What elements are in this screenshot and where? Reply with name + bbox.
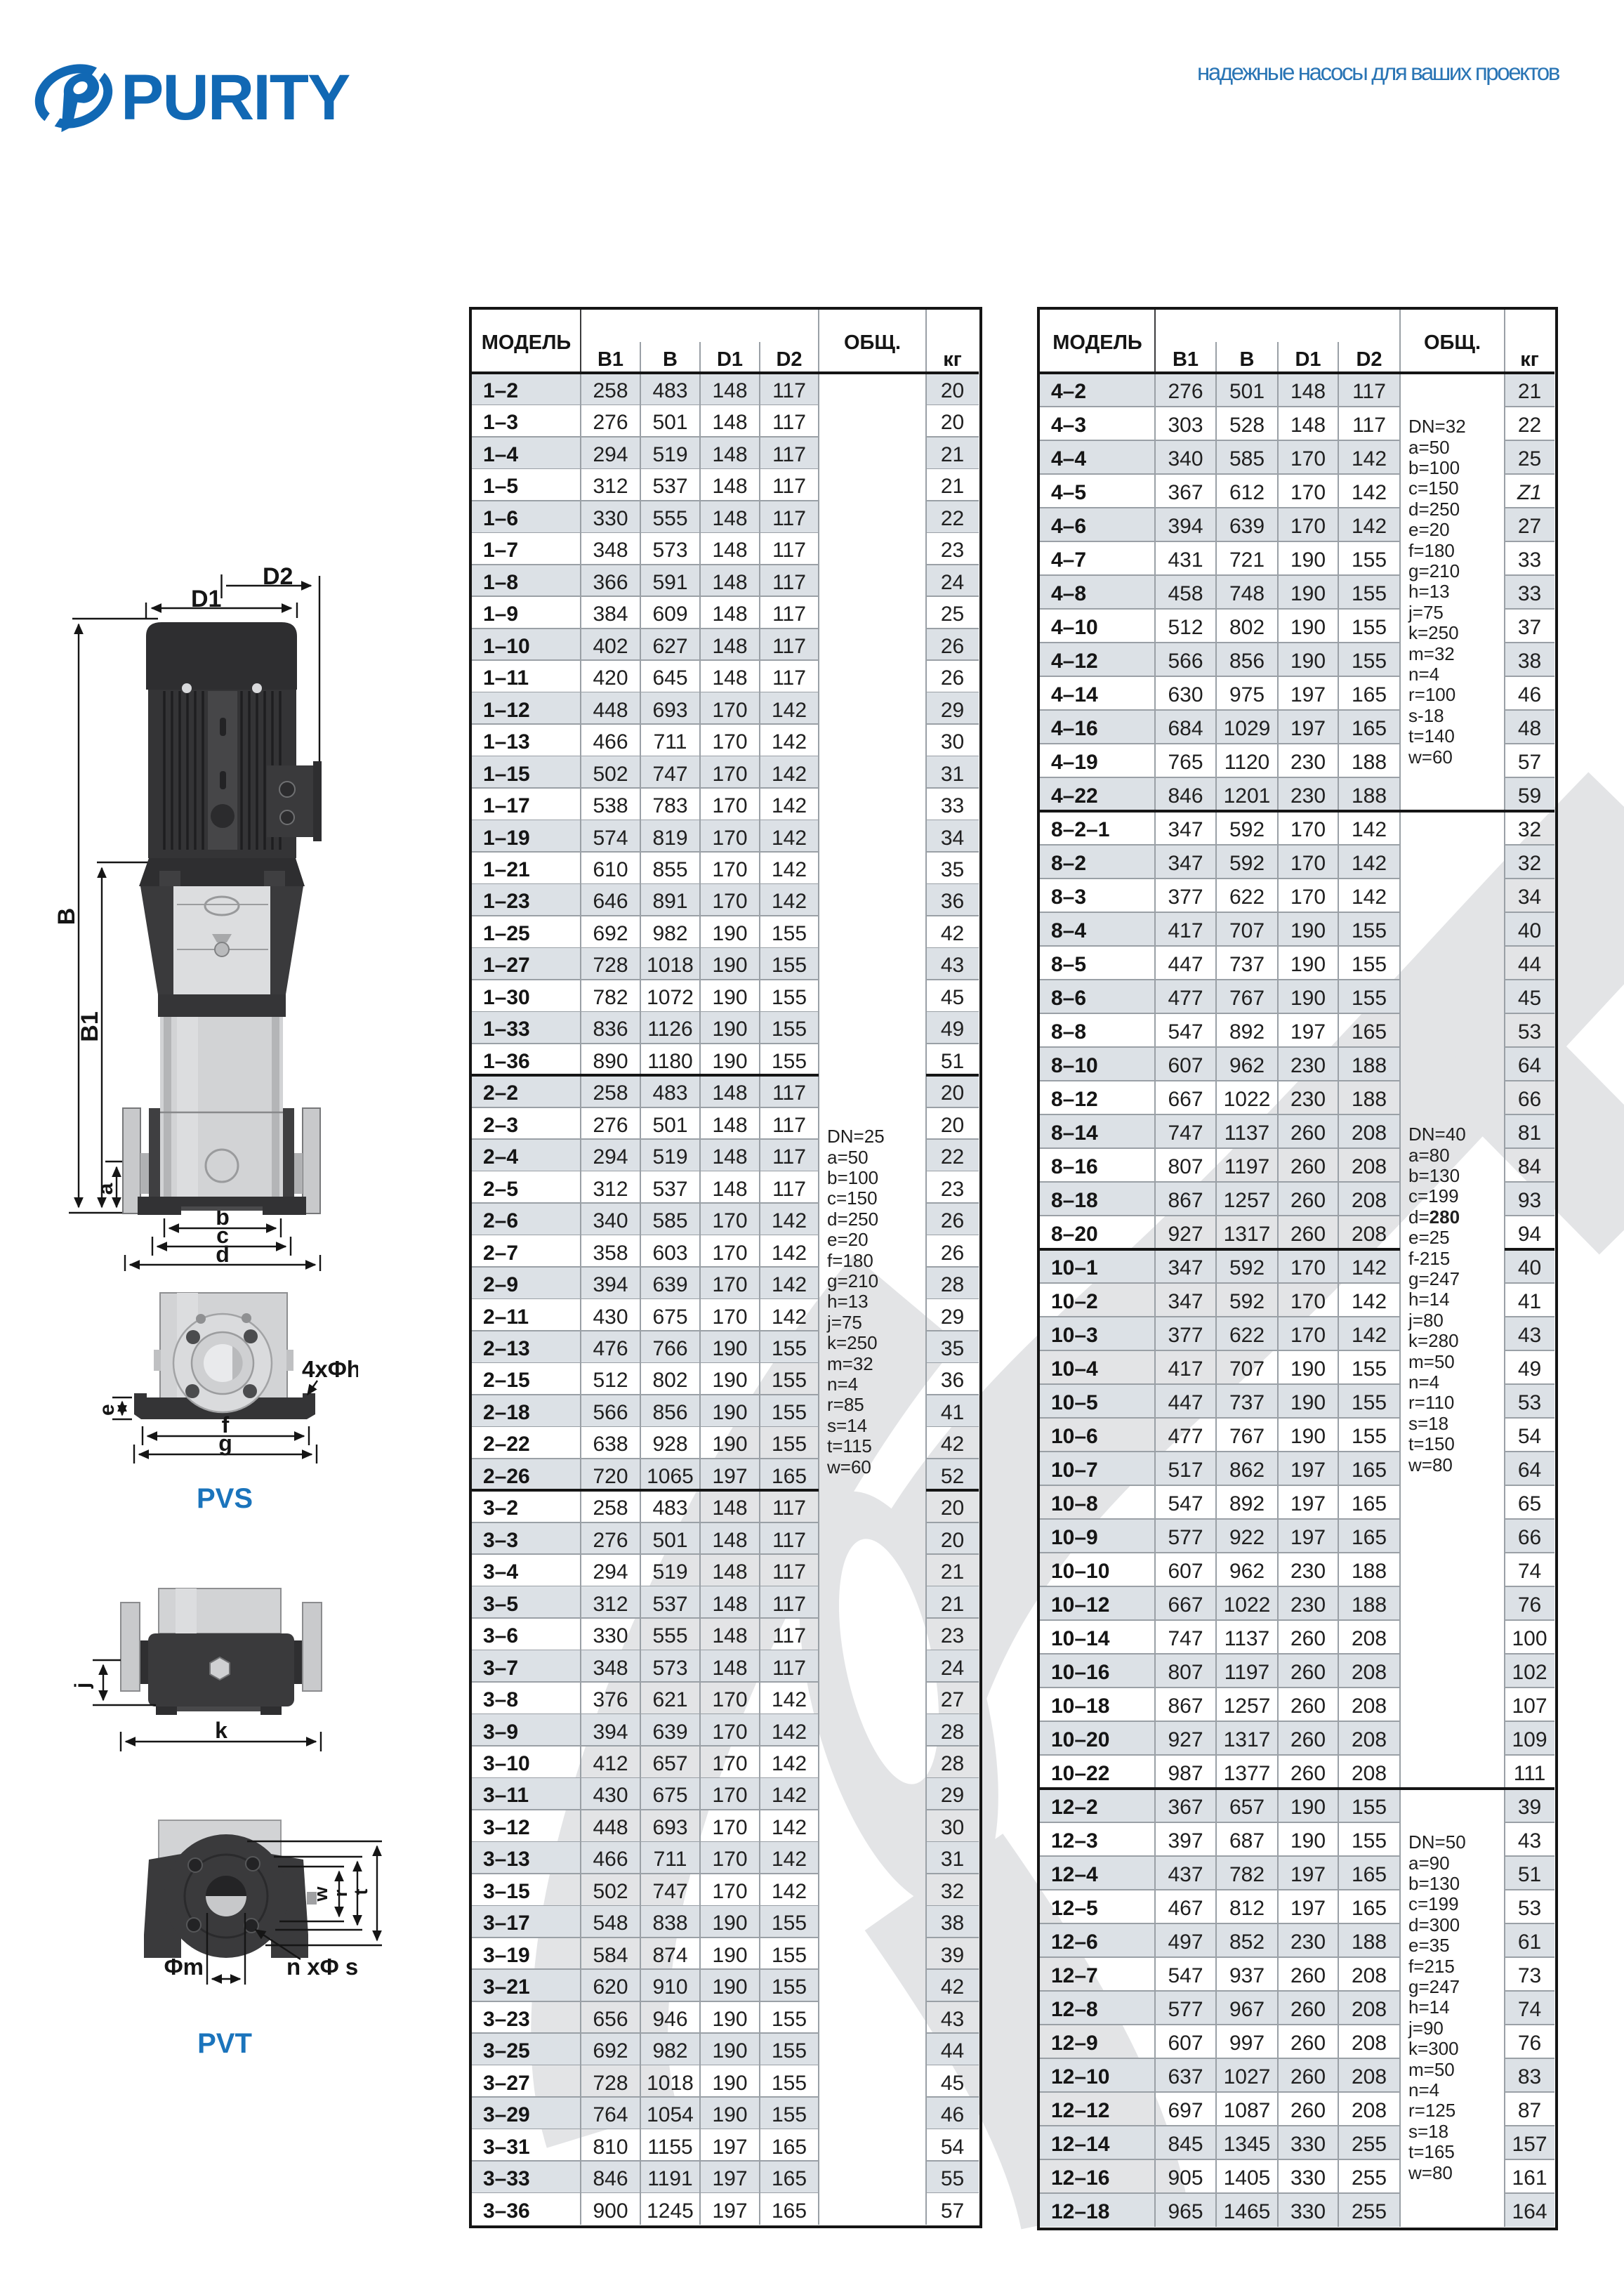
svg-text:d: d [216,1242,230,1267]
svg-text:D1: D1 [191,586,221,612]
svg-text:Φm: Φm [164,1954,204,1980]
svg-text:a: a [94,1183,117,1195]
svg-text:B1: B1 [77,1011,103,1041]
svg-text:e: e [102,1404,119,1416]
svg-text:B: B [56,908,80,926]
svg-text:k: k [215,1718,227,1743]
svg-text:r: r [330,1889,351,1897]
svg-text:t: t [350,1889,371,1895]
svg-text:D2: D2 [263,563,293,590]
svg-text:4xΦh: 4xΦh [302,1356,358,1382]
svg-text:g: g [218,1430,232,1456]
svg-text:w: w [310,1886,331,1902]
svg-text:j: j [71,1683,94,1689]
svg-text:PURITY: PURITY [121,62,350,133]
svg-text:n xΦ s: n xΦ s [286,1954,358,1980]
